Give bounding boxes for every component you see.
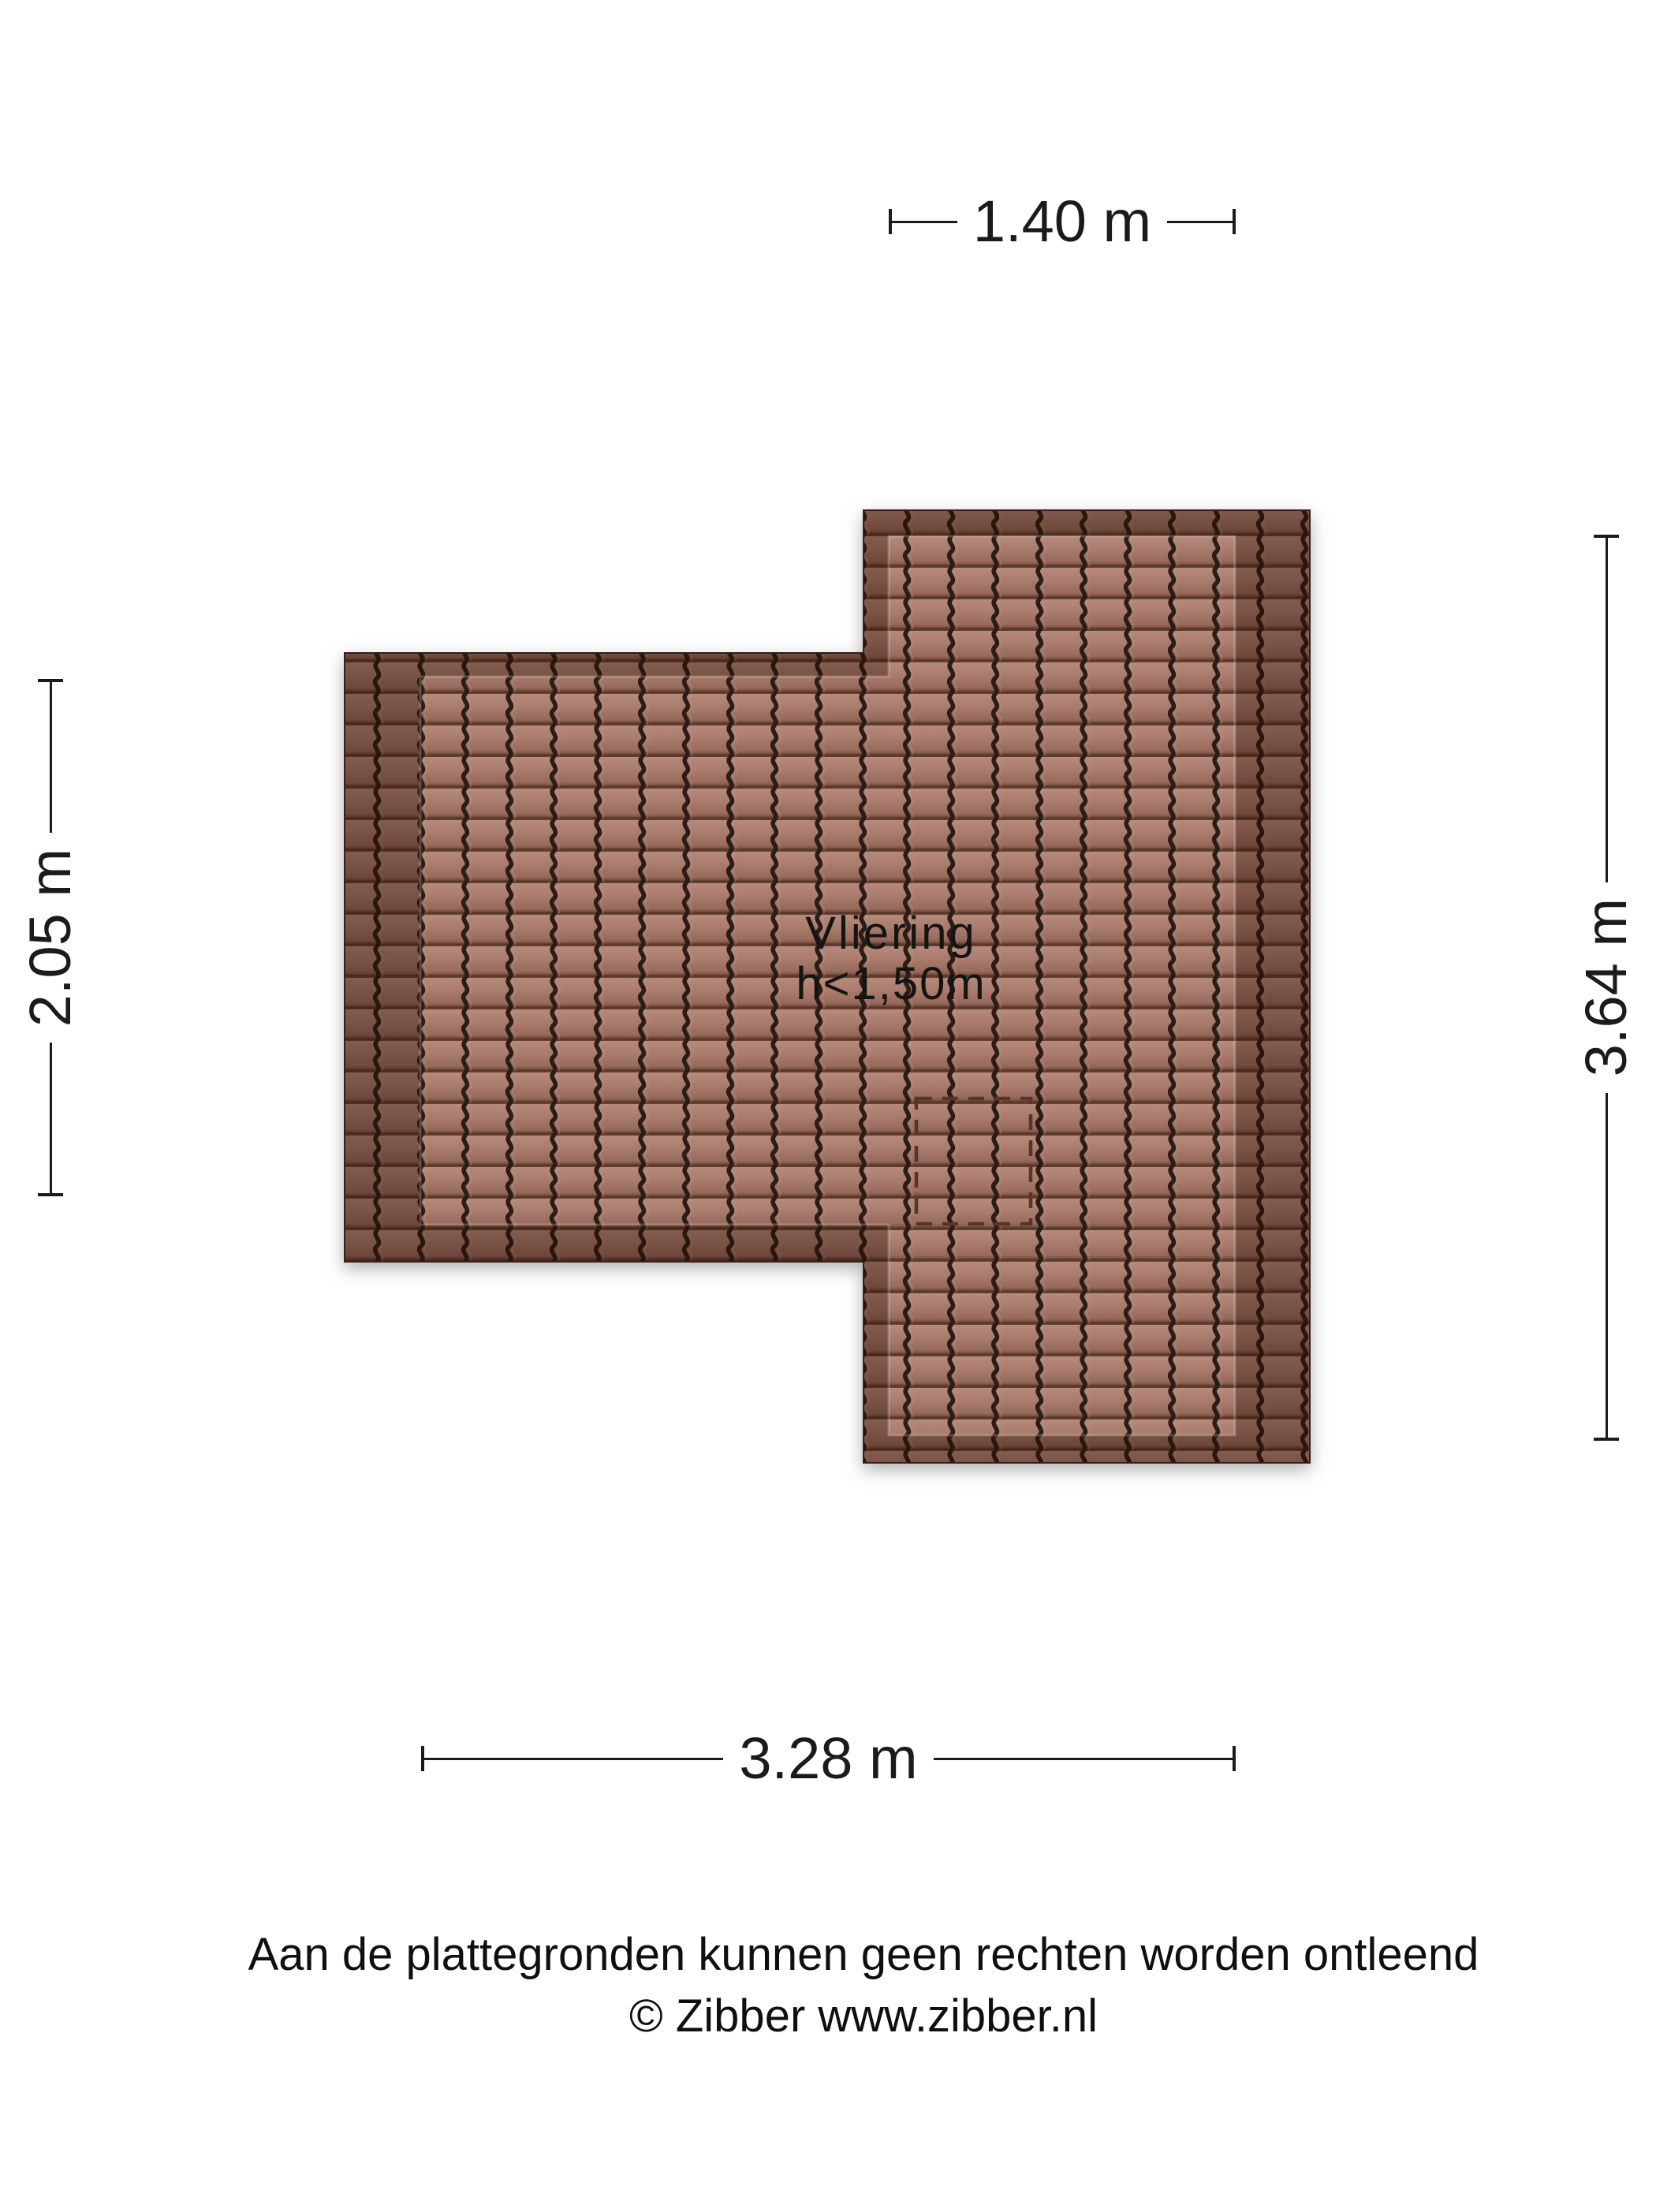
dimension-right: 3.64 m xyxy=(1579,535,1634,1441)
dimension-tick xyxy=(38,1193,63,1196)
dimension-line xyxy=(934,1758,1233,1760)
dimension-right-label: 3.64 m xyxy=(1577,882,1635,1092)
footer-copyright: © Zibber www.zibber.nl xyxy=(71,1986,1656,2047)
dimension-line xyxy=(50,1043,52,1193)
dimension-left: 2.05 m xyxy=(23,679,78,1196)
dimension-line xyxy=(424,1758,723,1760)
room-label: Vliering xyxy=(796,908,986,959)
dimension-bottom: 3.28 m xyxy=(421,1731,1236,1786)
dimension-tick xyxy=(1233,1746,1236,1771)
room-label-block: Vliering h<1,50m xyxy=(796,908,986,1009)
dimension-tick xyxy=(1233,209,1236,234)
dimension-line xyxy=(1606,1093,1608,1438)
dimension-line xyxy=(1606,538,1608,882)
dimension-top-label: 1.40 m xyxy=(957,192,1167,251)
dimension-line xyxy=(50,682,52,833)
footer: Aan de plattegronden kunnen geen rechten… xyxy=(71,1924,1656,2047)
dimension-line xyxy=(892,221,957,223)
footer-disclaimer: Aan de plattegronden kunnen geen rechten… xyxy=(71,1924,1656,1986)
dimension-line xyxy=(1167,221,1233,223)
floor-plan-canvas xyxy=(0,0,1656,2208)
room-height-label: h<1,50m xyxy=(796,959,986,1009)
dimension-tick xyxy=(1594,1438,1619,1441)
dimension-top: 1.40 m xyxy=(889,194,1236,249)
dimension-bottom-label: 3.28 m xyxy=(723,1729,933,1788)
dimension-left-label: 2.05 m xyxy=(21,833,80,1043)
roof-plan-svg xyxy=(0,0,1656,2208)
